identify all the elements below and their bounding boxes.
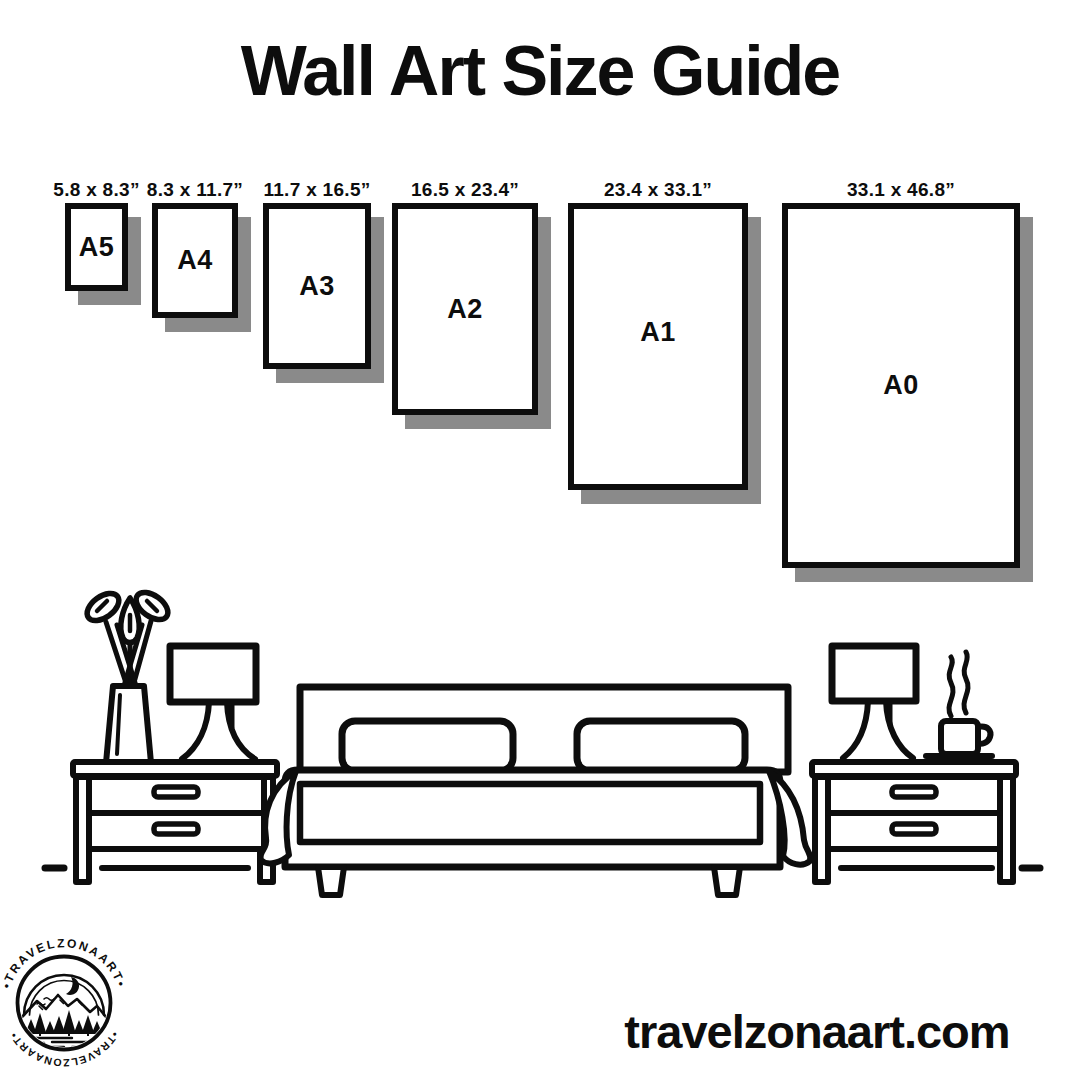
drawer-handle [892,787,936,797]
brand-logo: •TRAVELZONAART• •TRAVELZONAART• [0,933,134,1073]
bed-leg [318,867,344,895]
paper-a0: 33.1 x 46.8” A0 [782,203,1020,568]
paper-a1-label: A1 [640,317,676,348]
table-lamp-right-icon [832,646,916,758]
plant-vase-icon [82,587,172,763]
paper-a2-dims: 16.5 x 23.4” [411,179,519,201]
paper-a4: 8.3 x 11.7” A4 [152,203,238,318]
coffee-cup-icon [926,652,992,756]
paper-a4-label: A4 [177,245,213,276]
drawer-handle [892,824,936,834]
paper-a1-dims: 23.4 x 33.1” [604,179,712,201]
paper-a3: 11.7 x 16.5” A3 [263,203,371,369]
paper-a1: 23.4 x 33.1” A1 [568,203,748,490]
paper-a0-dims: 33.1 x 46.8” [847,179,955,201]
paper-a4-dims: 8.3 x 11.7” [147,179,243,201]
paper-a2-label: A2 [447,294,483,325]
paper-a5-dims: 5.8 x 8.3” [53,179,139,201]
bed-icon [260,687,810,895]
pillow-left [342,721,513,771]
paper-a5: 5.8 x 8.3” A5 [65,203,128,291]
drawer-handle [154,824,198,834]
nightstand-left-icon [73,762,277,882]
paper-a2: 16.5 x 23.4” A2 [392,203,538,415]
bed-front-panel [300,784,760,842]
paper-a5-label: A5 [79,232,115,263]
table-lamp-left-icon [170,646,256,759]
paper-a3-label: A3 [299,271,335,302]
page-title: Wall Art Size Guide [0,36,1080,106]
bed-leg [714,867,740,895]
pillow-right [577,721,745,771]
bedroom-scene-illustration [0,575,1080,905]
size-guide-poster: Wall Art Size Guide 5.8 x 8.3” A5 8.3 x … [0,0,1080,1080]
paper-a3-dims: 11.7 x 16.5” [263,179,370,201]
paper-a0-label: A0 [883,370,919,401]
nightstand-right-icon [812,762,1016,882]
drawer-handle [154,787,198,797]
website-url: travelzonaart.com [577,1008,1057,1055]
